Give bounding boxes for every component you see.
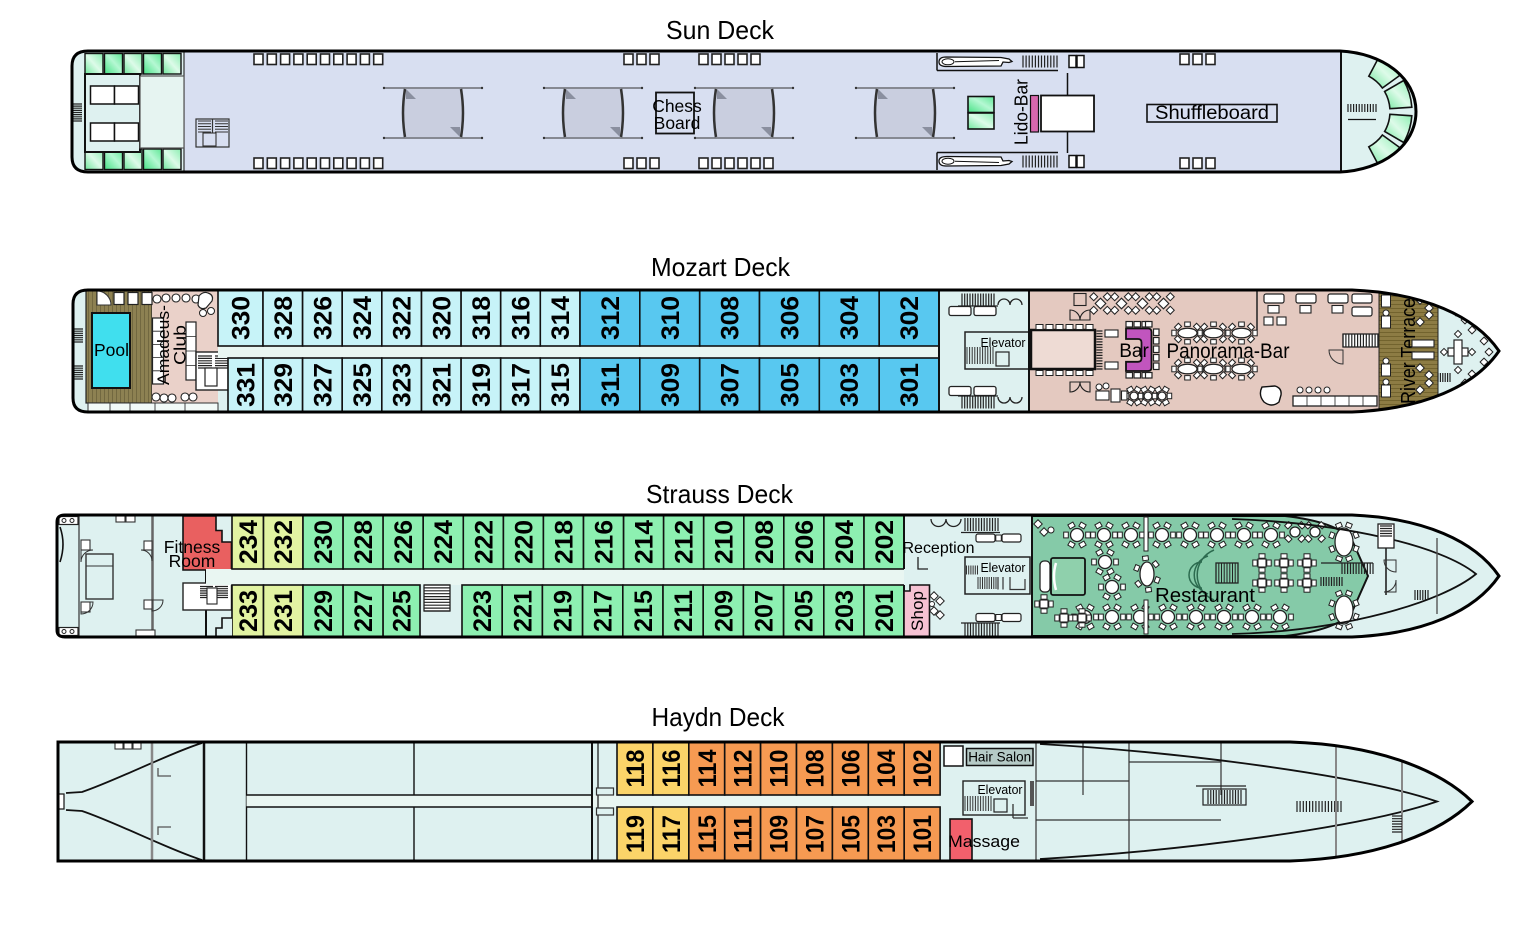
svg-text:Shuffleboard: Shuffleboard (1155, 103, 1269, 124)
svg-text:Shop: Shop (908, 591, 927, 631)
svg-text:323: 323 (389, 363, 417, 407)
svg-text:231: 231 (270, 590, 298, 632)
svg-text:227: 227 (350, 590, 378, 632)
svg-text:108: 108 (802, 749, 830, 787)
svg-text:118: 118 (622, 749, 650, 787)
svg-text:116: 116 (658, 750, 686, 788)
svg-text:104: 104 (873, 749, 901, 787)
svg-text:102: 102 (909, 750, 937, 788)
svg-text:230: 230 (310, 520, 338, 564)
svg-text:325: 325 (349, 363, 377, 407)
svg-text:316: 316 (508, 296, 536, 340)
svg-text:302: 302 (896, 296, 924, 340)
svg-text:216: 216 (591, 520, 619, 564)
svg-text:211: 211 (670, 590, 698, 632)
svg-text:321: 321 (428, 363, 456, 407)
svg-text:224: 224 (430, 520, 458, 564)
svg-text:River Terrace: River Terrace (1398, 298, 1420, 404)
svg-text:Pool: Pool (94, 340, 129, 360)
svg-text:212: 212 (671, 520, 699, 564)
svg-text:203: 203 (831, 590, 859, 632)
svg-text:219: 219 (550, 590, 578, 632)
svg-text:Elevator: Elevator (978, 783, 1023, 797)
svg-text:205: 205 (791, 590, 819, 632)
svg-text:103: 103 (873, 815, 901, 853)
svg-text:225: 225 (389, 590, 417, 632)
svg-text:312: 312 (597, 296, 625, 340)
svg-text:201: 201 (871, 590, 899, 632)
svg-text:115: 115 (694, 815, 722, 853)
svg-text:Hair Salon: Hair Salon (968, 749, 1031, 765)
svg-text:320: 320 (428, 296, 456, 340)
svg-text:322: 322 (389, 296, 417, 340)
svg-text:111: 111 (730, 815, 758, 853)
svg-text:229: 229 (310, 590, 338, 632)
svg-text:218: 218 (551, 520, 579, 564)
svg-text:109: 109 (766, 815, 794, 853)
svg-text:301: 301 (896, 363, 924, 407)
svg-text:106: 106 (837, 750, 865, 788)
svg-text:217: 217 (590, 590, 618, 632)
svg-text:Sun Deck: Sun Deck (666, 15, 775, 45)
svg-text:Elevator: Elevator (981, 561, 1026, 575)
svg-text:233: 233 (235, 590, 263, 632)
svg-text:310: 310 (657, 296, 685, 340)
svg-text:208: 208 (751, 520, 779, 564)
svg-text:318: 318 (468, 296, 496, 340)
svg-text:228: 228 (350, 520, 378, 564)
svg-text:214: 214 (631, 520, 659, 564)
svg-text:314: 314 (547, 296, 575, 340)
svg-text:329: 329 (270, 363, 298, 407)
svg-text:222: 222 (470, 520, 498, 564)
svg-text:Strauss Deck: Strauss Deck (646, 479, 794, 509)
svg-text:110: 110 (766, 750, 794, 788)
svg-text:220: 220 (510, 520, 538, 564)
svg-text:331: 331 (233, 363, 261, 407)
svg-text:101: 101 (909, 815, 937, 853)
svg-text:317: 317 (508, 363, 536, 407)
svg-text:210: 210 (711, 520, 739, 564)
svg-text:215: 215 (630, 590, 658, 632)
svg-text:315: 315 (547, 363, 575, 407)
svg-text:303: 303 (836, 363, 864, 407)
svg-text:Mozart Deck: Mozart Deck (651, 252, 791, 282)
svg-text:304: 304 (836, 296, 864, 340)
svg-text:324: 324 (349, 296, 377, 340)
svg-text:204: 204 (831, 520, 859, 564)
svg-text:326: 326 (309, 296, 337, 340)
svg-text:Haydn Deck: Haydn Deck (652, 702, 786, 732)
svg-text:311: 311 (597, 363, 625, 407)
svg-text:330: 330 (228, 296, 256, 340)
svg-text:306: 306 (776, 296, 804, 340)
svg-text:305: 305 (776, 363, 804, 407)
svg-text:Elevator: Elevator (981, 336, 1026, 350)
svg-text:105: 105 (837, 815, 865, 853)
svg-text:226: 226 (390, 520, 418, 564)
svg-text:Board: Board (654, 113, 701, 133)
svg-text:319: 319 (468, 363, 496, 407)
svg-text:202: 202 (871, 520, 899, 564)
svg-text:307: 307 (717, 363, 745, 407)
svg-text:206: 206 (791, 520, 819, 564)
svg-text:209: 209 (710, 590, 738, 632)
svg-text:117: 117 (658, 815, 686, 853)
svg-text:Reception: Reception (903, 540, 975, 557)
svg-text:327: 327 (309, 363, 337, 407)
svg-text:Restaurant: Restaurant (1155, 585, 1255, 607)
svg-text:Club: Club (171, 325, 190, 365)
svg-text:107: 107 (802, 815, 830, 853)
svg-text:223: 223 (469, 590, 497, 632)
svg-text:221: 221 (509, 590, 537, 632)
svg-text:Lido-Bar: Lido-Bar (1011, 79, 1032, 145)
svg-text:112: 112 (730, 750, 758, 788)
svg-text:308: 308 (717, 296, 745, 340)
svg-text:232: 232 (270, 520, 298, 564)
svg-text:207: 207 (751, 590, 779, 632)
svg-text:Massage: Massage (948, 833, 1020, 851)
svg-text:119: 119 (622, 815, 650, 853)
svg-text:Room: Room (169, 551, 216, 571)
svg-text:Bar: Bar (1119, 341, 1149, 362)
svg-text:309: 309 (657, 363, 685, 407)
svg-text:328: 328 (270, 296, 298, 340)
svg-text:114: 114 (694, 749, 722, 787)
svg-text:234: 234 (235, 520, 263, 564)
